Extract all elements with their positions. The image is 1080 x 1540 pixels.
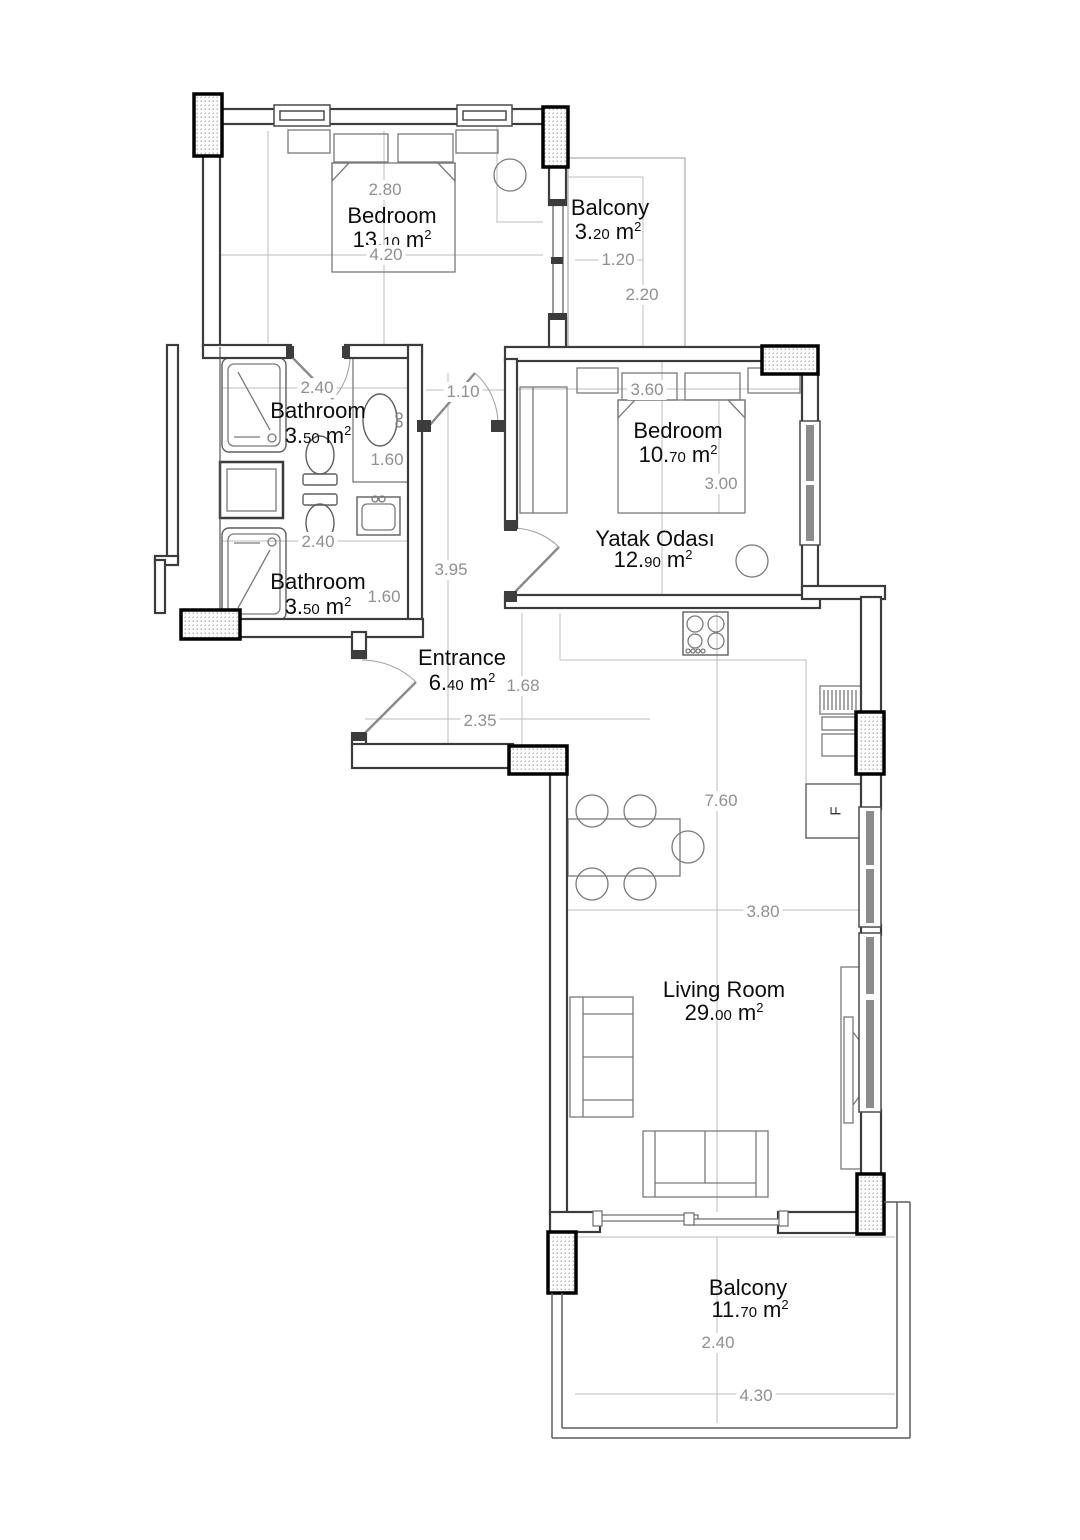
room-area-bathroom-2: 3.50m2 xyxy=(285,594,352,620)
stove xyxy=(683,612,728,655)
door-entrance xyxy=(360,660,416,738)
room-area-yatak-odasi: 12.90m2 xyxy=(614,547,693,573)
dim-2-40-balcony: 2.40 xyxy=(698,1333,737,1353)
room-area-entrance: 6.40m2 xyxy=(429,670,496,696)
dim-3-95: 3.95 xyxy=(431,560,470,580)
sink-2 xyxy=(357,496,400,535)
sliding-door-balcony xyxy=(593,1211,788,1226)
dim-3-00: 3.00 xyxy=(701,474,740,494)
sofa-horizontal xyxy=(643,1131,768,1197)
dim-1-60-bath2: 1.60 xyxy=(364,587,403,607)
room-label-bathroom-2: Bathroom xyxy=(270,569,365,595)
dim-2-35: 2.35 xyxy=(460,711,499,731)
room-area-balcony-top: 3.20m2 xyxy=(575,219,642,245)
window-bedroom2 xyxy=(800,421,820,545)
dim-1-20: 1.20 xyxy=(598,250,637,270)
floor-plan-drawing xyxy=(0,0,1080,1540)
windows xyxy=(274,105,881,1226)
dim-1-10: 1.10 xyxy=(443,382,482,402)
window-living-a xyxy=(859,807,881,927)
room-area-bedroom-2: 10.70m2 xyxy=(639,442,718,468)
plant-1 xyxy=(494,159,526,191)
room-label-bedroom-1: Bedroom xyxy=(347,203,436,229)
dim-1-68: 1.68 xyxy=(503,676,542,696)
dim-2-20: 2.20 xyxy=(622,285,661,305)
room-label-balcony-top: Balcony xyxy=(571,195,649,221)
dim-2-80: 2.80 xyxy=(365,180,404,200)
dim-2-40-bath2: 2.40 xyxy=(298,532,337,552)
room-label-entrance: Entrance xyxy=(418,645,506,671)
fridge-label: F xyxy=(828,806,845,815)
dining-table xyxy=(568,795,704,900)
wardrobe xyxy=(520,387,567,513)
room-label-bathroom-1: Bathroom xyxy=(270,398,365,424)
room-area-balcony-bottom: 11.70m2 xyxy=(711,1297,788,1323)
room-area-living-room: 29.00m2 xyxy=(685,1000,764,1026)
dim-1-60-bath1: 1.60 xyxy=(367,450,406,470)
plant-2 xyxy=(736,545,768,577)
sofa-vertical xyxy=(570,997,633,1117)
dim-3-80: 3.80 xyxy=(743,902,782,922)
room-area-bathroom-1: 3.50m2 xyxy=(285,423,352,449)
dim-2-40-bath1: 2.40 xyxy=(297,378,336,398)
furniture xyxy=(220,130,865,1197)
dim-7-60: 7.60 xyxy=(701,791,740,811)
walls xyxy=(155,109,885,1233)
window-bedroom1-a xyxy=(274,105,330,126)
dim-4-30: 4.30 xyxy=(736,1386,775,1406)
dim-3-60: 3.60 xyxy=(627,380,666,400)
floor-plan: Bedroom 13.10m2 Balcony 3.20m2 Bathroom … xyxy=(0,0,1080,1540)
door-bedroom-2 xyxy=(511,528,559,596)
dim-4-20: 4.20 xyxy=(366,245,405,265)
window-bedroom1-b xyxy=(457,105,512,126)
window-living-b xyxy=(859,933,881,1112)
bathroom-cabinet xyxy=(220,462,283,518)
room-label-bedroom-2: Bedroom xyxy=(633,418,722,444)
